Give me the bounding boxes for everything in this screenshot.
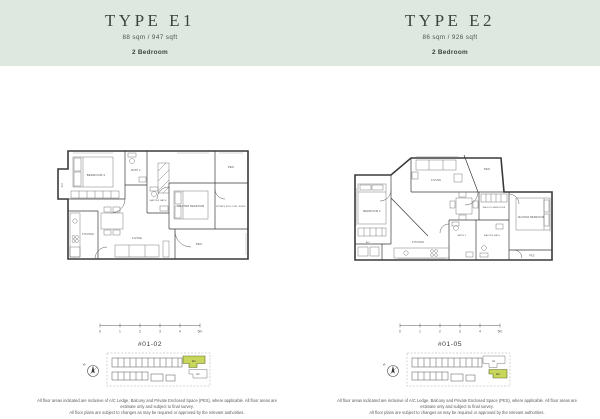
unit-e1-highlight: E1 — [183, 356, 205, 368]
area-label-e2: 86 sqm / 926 sqft — [300, 34, 600, 41]
unit-e2-outline: E2 — [189, 370, 207, 379]
room-label-bedroom2: BEDROOM 2 — [363, 209, 381, 213]
bedroom-label-e2: 2 Bedroom — [300, 49, 600, 56]
column-e1-header: TYPE E1 88 sqm / 947 sqft 2 Bedroom — [0, 0, 300, 56]
room-label-ac: A/C — [366, 241, 370, 244]
outer-wall — [58, 151, 248, 259]
north-label: N — [383, 362, 387, 367]
windows-e2 — [357, 157, 551, 259]
room-label-bath2: BATH 2 — [131, 169, 141, 172]
tick-1: 1 — [119, 330, 121, 334]
room-label-pes-top: PES — [228, 165, 234, 169]
unit-number-e1: #01-02 — [0, 341, 300, 348]
unit-e1-outline: E1 — [483, 356, 505, 368]
scale-line — [400, 324, 500, 328]
unit-e1-label: E1 — [492, 359, 496, 363]
scale-tick-labels: 0 1 2 3 4 5m — [399, 330, 502, 334]
tick-5: 5m — [198, 330, 203, 334]
floor-plan-e1: A/C BEDROOM 2 BATH 2 MASTER BATH PES MAS… — [57, 149, 252, 261]
room-label-bedroom2: BEDROOM 2 — [87, 173, 106, 177]
brochure-page: TYPE E1 88 sqm / 947 sqft 2 Bedroom TYPE… — [0, 0, 600, 419]
walls-e1 — [58, 151, 248, 259]
compass-icon: N — [383, 362, 399, 377]
tick-0: 0 — [99, 330, 101, 334]
tick-2: 2 — [439, 330, 441, 334]
scale-tick-labels: 0 1 2 3 4 5m — [99, 330, 202, 334]
inner-walls — [355, 155, 552, 260]
compass-icon: N — [83, 362, 99, 377]
unit-number-e2: #01-05 — [300, 341, 600, 348]
key-plan-e1: N E1 E2 — [83, 350, 213, 388]
column-e2-header: TYPE E2 86 sqm / 926 sqft 2 Bedroom — [300, 0, 600, 56]
page-title-e1: TYPE E1 — [0, 11, 300, 31]
disclaimer-line-2: All floor plans are subject to changes a… — [332, 410, 582, 416]
room-label-ac: A/C — [61, 183, 64, 188]
scale-bar-e2: 0 1 2 3 4 5m — [395, 322, 505, 335]
scale-line — [100, 324, 200, 328]
tick-3: 3 — [159, 330, 161, 334]
room-label-living: LIVING — [132, 236, 142, 240]
room-label-master-bedroom: MASTER BEDROOM — [518, 216, 544, 219]
area-label-e1: 88 sqm / 947 sqft — [0, 34, 300, 41]
room-label-pes-top: PES — [484, 167, 490, 171]
room-label-kitchen: KITCHEN — [82, 233, 94, 236]
unit-e1-label: E1 — [192, 359, 196, 363]
tick-3: 3 — [459, 330, 461, 334]
bedroom-label-e1: 2 Bedroom — [0, 49, 300, 56]
windows-e1 — [73, 153, 246, 257]
outer-wall — [355, 158, 552, 260]
building-outline — [112, 358, 182, 381]
unit-e2-label: E2 — [196, 372, 200, 376]
room-label-master-bath: MASTER BATH — [150, 199, 167, 202]
tick-4: 4 — [179, 330, 181, 334]
north-label: N — [83, 362, 87, 367]
room-label-kitchen: KITCHEN — [412, 241, 424, 244]
disclaimer-line-1: All floor areas indicated are inclusive … — [32, 398, 282, 410]
scale-bar-e1: 0 1 2 3 4 5m — [95, 322, 205, 335]
disclaimer-line-1: All floor areas indicated are inclusive … — [332, 398, 582, 410]
tick-5: 5m — [498, 330, 503, 334]
room-label-walk-in-wardrobe: WALK-IN WARDROBE — [483, 206, 506, 209]
floor-plan-e2: LIVING PES BEDROOM 2 WALK-IN WARDROBE MA… — [354, 148, 554, 263]
building-outline — [412, 358, 482, 381]
walls-e2 — [355, 155, 552, 260]
disclaimer-e1: All floor areas indicated are inclusive … — [32, 398, 282, 416]
tick-0: 0 — [399, 330, 401, 334]
room-label-master-bedroom: MASTER BEDROOM — [178, 205, 205, 208]
tick-1: 1 — [419, 330, 421, 334]
tick-4: 4 — [479, 330, 481, 334]
room-label-bath2: BATH 2 — [458, 234, 467, 237]
room-labels-e1: A/C BEDROOM 2 BATH 2 MASTER BATH PES MAS… — [61, 165, 246, 246]
room-label-living: LIVING — [431, 178, 441, 182]
room-label-master-bath: MASTER BATH — [484, 234, 501, 237]
room-label-pes-bottom: PES — [529, 255, 535, 258]
key-plan-e2: N E1 E2 — [383, 350, 513, 388]
room-label-pes-side: PRIVATE ENCLOSED SPACE — [216, 205, 246, 208]
page-title-e2: TYPE E2 — [300, 11, 600, 31]
unit-e2-label: E2 — [496, 372, 500, 376]
unit-e2-highlight: E2 — [489, 370, 507, 379]
disclaimer-e2: All floor areas indicated are inclusive … — [332, 398, 582, 416]
room-label-pes-bottom: PES — [196, 242, 202, 246]
tick-2: 2 — [139, 330, 141, 334]
disclaimer-line-2: All floor plans are subject to changes a… — [32, 410, 282, 416]
